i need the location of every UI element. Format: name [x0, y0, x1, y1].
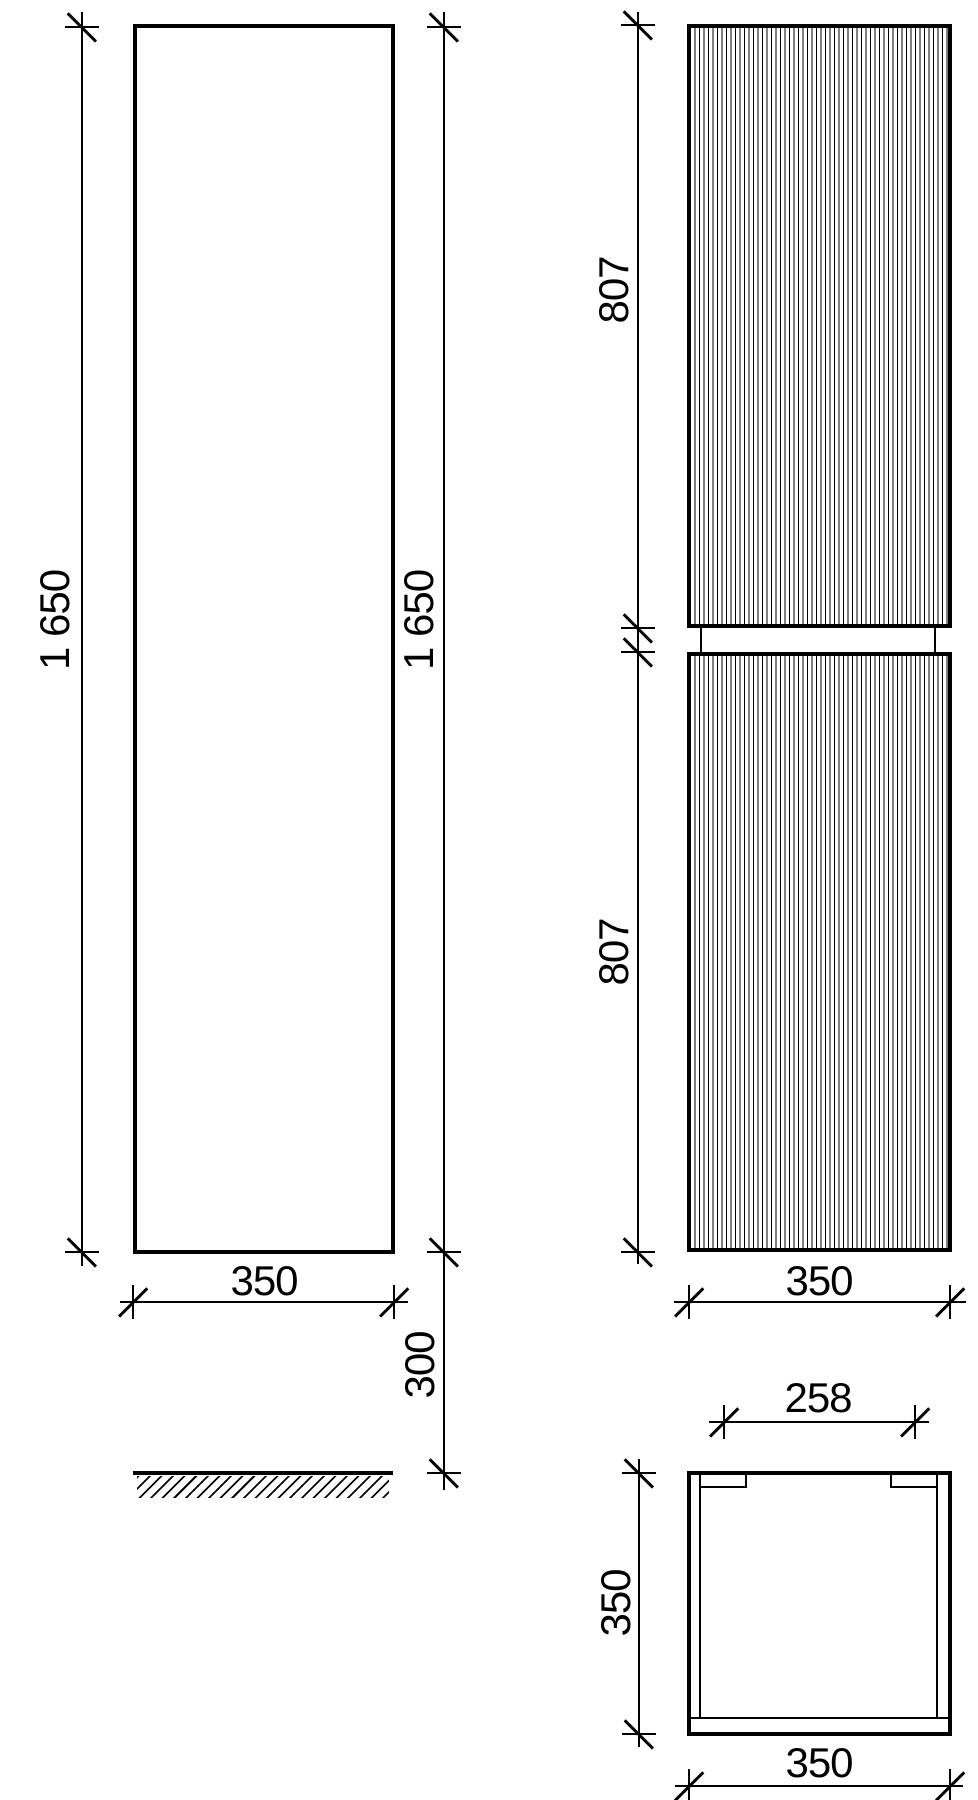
dim-label-front-width: 350	[785, 1260, 852, 1302]
floor-hatching	[137, 1476, 389, 1498]
back-panel-line	[691, 1717, 948, 1719]
dim-label-lower-door: 807	[593, 918, 635, 985]
front-view-lower-door	[687, 652, 952, 1252]
dim-label-side-height-right: 1 650	[398, 570, 440, 670]
carcass-wall-line	[700, 628, 702, 652]
top-view-body-outline	[687, 1471, 952, 1736]
dim-label-top-depth: 350	[595, 1569, 637, 1636]
dimension-line	[637, 12, 639, 1264]
floor-line	[133, 1471, 393, 1475]
hinge-notch-left	[701, 1475, 747, 1488]
dim-label-upper-door: 807	[593, 256, 635, 323]
dim-label-side-width: 350	[230, 1260, 297, 1302]
dim-label-floor-gap: 300	[399, 1331, 441, 1398]
side-view-body-outline	[133, 24, 395, 1254]
dim-label-opening-width: 258	[784, 1377, 851, 1419]
carcass-wall-line	[934, 628, 936, 652]
front-view-upper-door	[687, 24, 952, 628]
dim-label-top-width: 350	[785, 1742, 852, 1784]
dimension-line	[709, 1421, 929, 1423]
technical-drawing: 1 650 1 650 300 350 807 807	[0, 0, 978, 1800]
hinge-notch-right	[890, 1475, 936, 1488]
dim-label-side-height-left: 1 650	[34, 570, 76, 670]
dimension-line	[443, 12, 445, 1490]
side-wall-inner-line	[699, 1475, 701, 1719]
side-wall-inner-line	[936, 1475, 938, 1719]
dimension-line	[81, 12, 83, 1266]
